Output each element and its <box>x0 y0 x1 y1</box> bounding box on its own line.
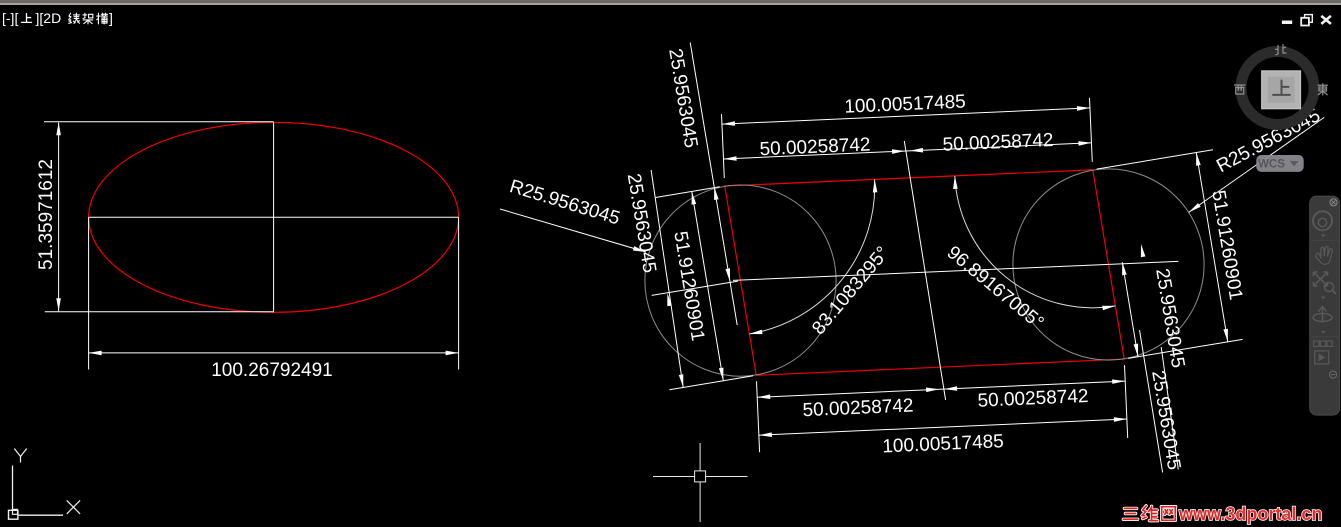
svg-text:25.9563045: 25.9563045 <box>623 172 660 274</box>
svg-text:100.00517485: 100.00517485 <box>882 431 1004 457</box>
svg-text:25.9563045: 25.9563045 <box>1147 369 1184 471</box>
svg-text:R25.9563045: R25.9563045 <box>507 176 622 229</box>
svg-text:83.1083295°: 83.1083295° <box>808 243 893 339</box>
svg-text:100.26792491: 100.26792491 <box>211 360 333 381</box>
svg-text:50.00258742: 50.00258742 <box>942 130 1054 156</box>
svg-text:50.00258742: 50.00258742 <box>977 386 1089 412</box>
svg-text:WCS: WCS <box>1258 159 1285 171</box>
svg-text:96.89167005°: 96.89167005° <box>943 242 1048 334</box>
svg-text:51.91260901: 51.91260901 <box>1207 189 1246 302</box>
svg-text:www.3dportal.cn: www.3dportal.cn <box>1178 504 1322 524</box>
svg-text:][2D: ][2D <box>36 10 62 26</box>
svg-text:]: ] <box>109 10 113 26</box>
svg-text:50.00258742: 50.00258742 <box>759 134 871 160</box>
svg-text:51.91260901: 51.91260901 <box>669 230 708 343</box>
svg-text:[-][: [-][ <box>2 10 18 26</box>
svg-text:25.9563045: 25.9563045 <box>664 47 701 149</box>
svg-text:51.35971612: 51.35971612 <box>36 159 57 270</box>
svg-text:50.00258742: 50.00258742 <box>802 395 914 421</box>
